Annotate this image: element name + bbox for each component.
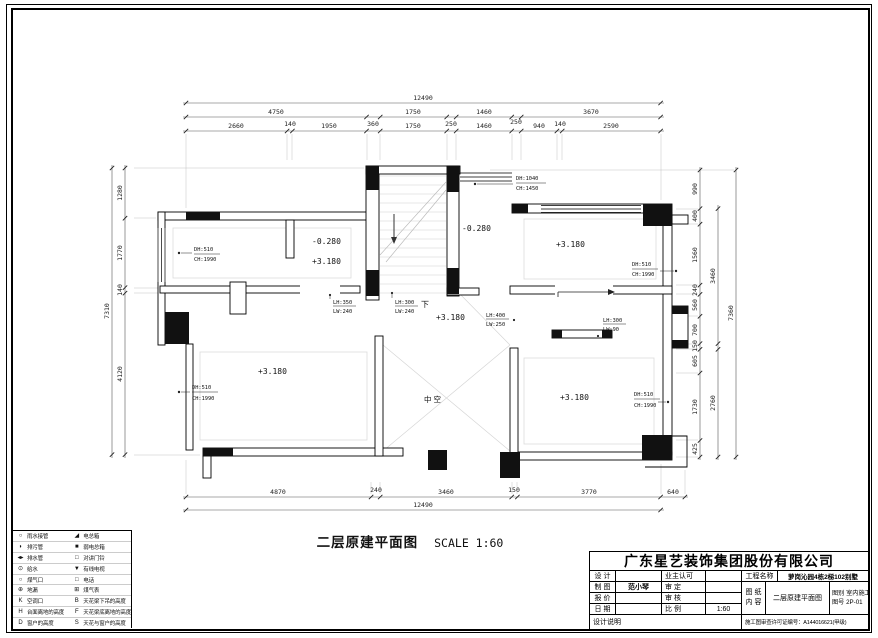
plan-title: 二层原建平面图 SCALE 1:60 — [260, 531, 560, 551]
owner-approval-label: 业主认可 — [662, 571, 706, 582]
project-name: 萝岗沁园4栋2梯102别墅 — [778, 571, 868, 582]
svg-text:LW:250: LW:250 — [486, 322, 505, 328]
svg-text:150: 150 — [691, 340, 699, 352]
svg-text:1750: 1750 — [405, 122, 421, 130]
legend-item: ○煤气口 — [13, 575, 69, 586]
svg-text:LH:400: LH:400 — [486, 313, 505, 319]
legend-item: D窗户的高度 — [13, 618, 69, 628]
svg-text:+3.180: +3.180 — [258, 367, 287, 376]
svg-text:1560: 1560 — [691, 247, 699, 263]
project-label: 工程名称 — [742, 571, 778, 582]
svg-text:3670: 3670 — [583, 108, 599, 116]
svg-text:1460: 1460 — [476, 122, 492, 130]
staircase — [380, 176, 446, 293]
svg-text:DH:510: DH:510 — [192, 385, 211, 391]
gas-outlet-icon: ○ — [16, 577, 25, 583]
title-block: 广东星艺装饰集团股份有限公司 设 计 制 图 报 价 日 期 范小琴 业主认可 … — [589, 551, 869, 630]
review-value — [706, 593, 742, 604]
rain-pipe-icon: ○ — [16, 533, 25, 539]
svg-text:1750: 1750 — [405, 108, 421, 116]
legend-item: S天花与窗户的高度 — [69, 618, 131, 628]
svg-text:1460: 1460 — [476, 108, 492, 116]
svg-text:2590: 2590 — [603, 122, 619, 130]
svg-text:4870: 4870 — [270, 488, 286, 496]
svg-text:CH:1990: CH:1990 — [192, 396, 214, 402]
svg-text:2760: 2760 — [709, 395, 717, 411]
svg-text:CH:1990: CH:1990 — [632, 272, 654, 278]
plan-title-scale: SCALE 1:60 — [434, 536, 503, 550]
svg-text:990: 990 — [691, 183, 699, 195]
svg-text:DH:1040: DH:1040 — [516, 176, 538, 182]
drawing-page: 12490 4750 1750 1460 3670 2660 140 1950 … — [0, 0, 878, 638]
low-voltage-box-icon: ■ — [72, 544, 81, 550]
legend-item: ◢电总箱 — [69, 531, 131, 542]
svg-text:1950: 1950 — [321, 122, 337, 130]
svg-text:1730: 1730 — [691, 399, 699, 415]
svg-text:中空: 中空 — [424, 394, 443, 404]
legend-item: □对讲门铃 — [69, 553, 131, 564]
svg-text:DH:510: DH:510 — [194, 247, 213, 253]
svg-text:下: 下 — [421, 300, 429, 309]
telephone-icon: □ — [72, 577, 81, 583]
window-height-icon: D — [16, 620, 25, 626]
svg-text:1770: 1770 — [116, 245, 124, 261]
legend-item: F天花梁底离地的高度 — [69, 607, 131, 618]
intercom-icon: □ — [72, 555, 81, 561]
design-note-label: 设计说明 — [590, 615, 742, 629]
dimension-labels: 12490 4750 1750 1460 3670 2660 140 1950 … — [103, 94, 735, 509]
beam-drop-height-icon: B — [72, 598, 81, 604]
legend-item: ▼有线电视 — [69, 564, 131, 575]
svg-text:12490: 12490 — [413, 94, 433, 102]
legend-item: ◗排污管 — [13, 542, 69, 553]
svg-text:LW:90: LW:90 — [603, 327, 619, 333]
beam-floor-height-icon: F — [72, 609, 81, 615]
legend-item: K空调口 — [13, 596, 69, 607]
legend-item: ⊙给水 — [13, 564, 69, 575]
water-supply-icon: ⊙ — [16, 566, 25, 572]
legend-item: ◂▸排水管 — [13, 553, 69, 564]
level-labels: -0.280 +3.180 -0.280 +3.180 +3.180 +3.18… — [258, 224, 589, 402]
svg-text:400: 400 — [691, 210, 699, 222]
design-value — [616, 571, 662, 582]
svg-text:940: 940 — [533, 122, 545, 130]
date-label: 日 期 — [590, 604, 616, 615]
svg-text:CH:1990: CH:1990 — [194, 257, 216, 263]
svg-text:700: 700 — [691, 324, 699, 336]
sewage-pipe-icon: ◗ — [16, 544, 25, 550]
svg-text:DH:510: DH:510 — [634, 392, 653, 398]
svg-text:DH:510: DH:510 — [632, 262, 651, 268]
svg-text:-0.280: -0.280 — [462, 224, 491, 233]
sheet-name: 二层原建平面图 — [766, 582, 830, 615]
svg-text:7310: 7310 — [103, 303, 111, 319]
scale-value: 1:60 — [706, 604, 742, 615]
cable-tv-icon: ▼ — [72, 566, 81, 572]
owner-approval-value — [706, 571, 742, 582]
svg-text:+3.180: +3.180 — [312, 257, 341, 266]
sheet-number: 图号 2P-01 — [832, 598, 863, 607]
draft-label: 制 图 — [590, 582, 616, 593]
plan-title-text: 二层原建平面图 — [317, 531, 419, 551]
quote-label: 报 价 — [590, 593, 616, 604]
svg-text:140: 140 — [554, 120, 566, 128]
review-label: 审 核 — [662, 593, 706, 604]
power-box-icon: ◢ — [72, 533, 81, 539]
legend-item: ⊕地漏 — [13, 585, 69, 596]
svg-text:2660: 2660 — [228, 122, 244, 130]
legend-item: □电话 — [69, 575, 131, 586]
svg-text:3460: 3460 — [709, 268, 717, 284]
legend-right-column: ◢电总箱 ■弱电总箱 □对讲门铃 ▼有线电视 □电话 ⊞煤气表 B天花梁下吊的高… — [69, 531, 131, 628]
svg-text:140: 140 — [284, 120, 296, 128]
svg-text:250: 250 — [510, 118, 522, 126]
svg-text:4120: 4120 — [116, 366, 124, 382]
svg-text:LH:350: LH:350 — [333, 300, 352, 306]
svg-text:-0.280: -0.280 — [312, 237, 341, 246]
svg-text:425: 425 — [691, 443, 699, 455]
quote-value — [616, 593, 662, 604]
svg-text:LH:300: LH:300 — [603, 318, 622, 324]
scale-label: 比 例 — [662, 604, 706, 615]
sheet-content-label: 图 纸 内 容 — [742, 582, 766, 615]
legend-left-column: ○雨水接管 ◗排污管 ◂▸排水管 ⊙给水 ○煤气口 ⊕地漏 K空调口 H台面离地… — [13, 531, 69, 628]
legend-item: H台面离地的高度 — [13, 607, 69, 618]
window-symbols — [158, 173, 641, 282]
ac-outlet-icon: K — [16, 598, 25, 604]
svg-text:640: 640 — [667, 488, 679, 496]
draft-name: 范小琴 — [616, 582, 662, 593]
legend-item: ○雨水接管 — [13, 531, 69, 542]
svg-text:3460: 3460 — [438, 488, 454, 496]
legend-item: ■弱电总箱 — [69, 542, 131, 553]
svg-text:360: 360 — [367, 120, 379, 128]
legend: ○雨水接管 ◗排污管 ◂▸排水管 ⊙给水 ○煤气口 ⊕地漏 K空调口 H台面离地… — [13, 530, 132, 628]
svg-text:LH:300: LH:300 — [395, 300, 414, 306]
approve-label: 审 定 — [662, 582, 706, 593]
svg-text:250: 250 — [445, 120, 457, 128]
permit-number: 施工图审查许可证编号：A144016621(甲级) — [742, 615, 868, 629]
counter-height-icon: H — [16, 609, 25, 615]
date-value — [616, 604, 662, 615]
svg-text:7360: 7360 — [727, 305, 735, 321]
legend-item: B天花梁下吊的高度 — [69, 596, 131, 607]
ceiling-window-height-icon: S — [72, 620, 81, 626]
gas-meter-icon: ⊞ — [72, 587, 81, 593]
svg-text:+3.180: +3.180 — [436, 313, 465, 322]
svg-text:4750: 4750 — [268, 108, 284, 116]
svg-text:150: 150 — [508, 486, 520, 494]
sheet-meta: 图别 室内施工图 图号 2P-01 — [830, 582, 868, 615]
stair-direction-arrow — [391, 237, 397, 244]
svg-text:LW:240: LW:240 — [333, 309, 352, 315]
approve-value — [706, 582, 742, 593]
svg-text:+3.180: +3.180 — [556, 240, 585, 249]
svg-text:12490: 12490 — [413, 501, 433, 509]
svg-text:140: 140 — [116, 284, 124, 296]
drain-pipe-icon: ◂▸ — [16, 555, 25, 561]
legend-item: ⊞煤气表 — [69, 585, 131, 596]
svg-text:CH:1990: CH:1990 — [634, 403, 656, 409]
svg-text:CH:1450: CH:1450 — [516, 186, 538, 192]
svg-text:560: 560 — [691, 299, 699, 311]
category: 图别 室内施工图 — [832, 589, 868, 598]
floor-drain-icon: ⊕ — [16, 587, 25, 593]
design-label: 设 计 — [590, 571, 616, 582]
svg-text:240: 240 — [370, 486, 382, 494]
svg-text:3770: 3770 — [581, 488, 597, 496]
svg-text:+3.180: +3.180 — [560, 393, 589, 402]
svg-text:1280: 1280 — [116, 185, 124, 201]
svg-text:LW:240: LW:240 — [395, 309, 414, 315]
svg-text:240: 240 — [691, 284, 699, 296]
company-name: 广东星艺装饰集团股份有限公司 — [590, 552, 868, 571]
svg-text:605: 605 — [691, 355, 699, 367]
